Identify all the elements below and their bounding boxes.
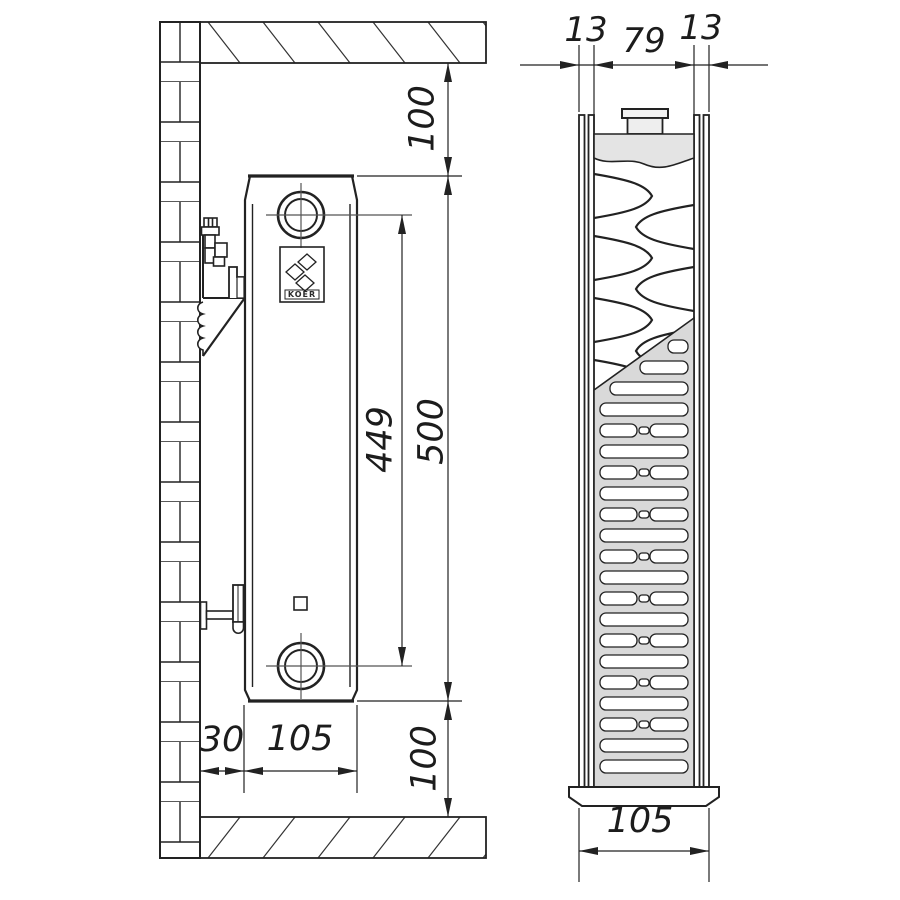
dim-connection-spacing-label: 449 [364,380,399,500]
brand-logo-text: KOER [282,291,322,299]
dim-front-panel-label: 13 [661,11,741,45]
radiator-side-view [245,176,357,701]
top-pipe-stub [622,109,668,134]
radiator-section-view [569,109,719,806]
bottom-wall-bracket [201,585,244,633]
radiator-installation-drawing: 13 79 13 100 449 500 100 30 105 105 KOER [0,0,900,900]
dim-section-depth-label: 105 [590,804,690,839]
dim-radiator-height-label: 500 [415,372,450,492]
front-grille [594,318,694,787]
top-wall-bracket [198,218,245,356]
dim-bottom-clearance-label: 100 [408,699,443,819]
ceiling-section [200,22,486,63]
dim-side-depth-label: 105 [250,722,350,757]
water-header [594,134,694,167]
dim-top-clearance-label: 100 [406,59,441,179]
floor-section [200,817,486,858]
